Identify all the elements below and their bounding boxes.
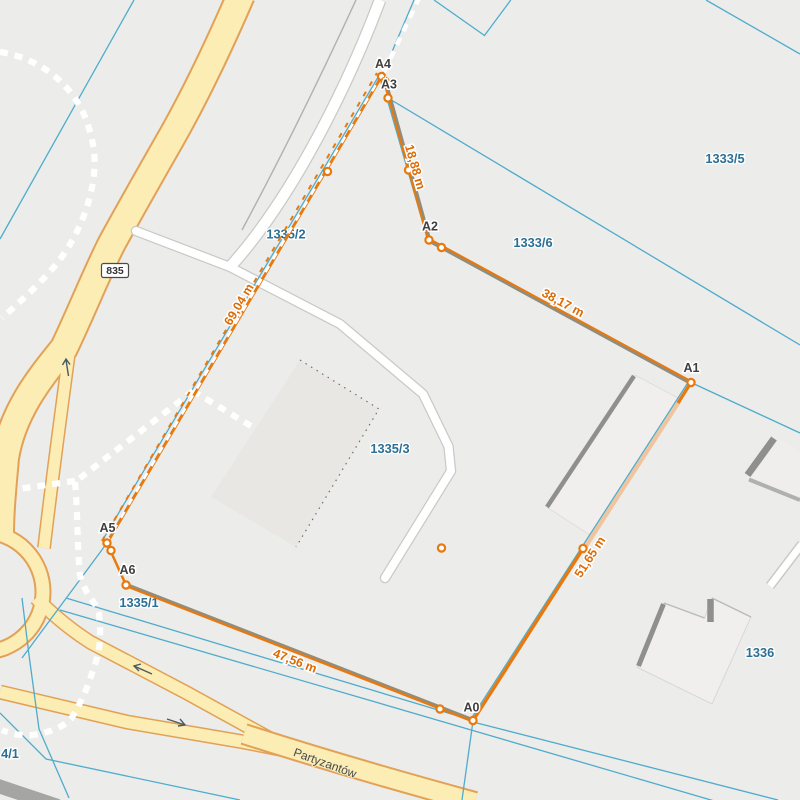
svg-text:1335/3: 1335/3 (370, 441, 409, 456)
svg-text:835: 835 (106, 265, 124, 277)
svg-text:A1: A1 (684, 361, 700, 375)
svg-text:1333/5: 1333/5 (705, 151, 744, 166)
svg-text:A6: A6 (120, 563, 136, 577)
svg-text:4/1: 4/1 (1, 746, 19, 761)
svg-text:A0: A0 (464, 701, 480, 715)
svg-text:1333/6: 1333/6 (513, 235, 552, 250)
svg-text:A2: A2 (422, 220, 438, 234)
svg-text:A3: A3 (381, 78, 397, 92)
svg-text:A5: A5 (100, 521, 116, 535)
svg-text:1336: 1336 (746, 645, 774, 660)
svg-text:A4: A4 (375, 57, 391, 71)
